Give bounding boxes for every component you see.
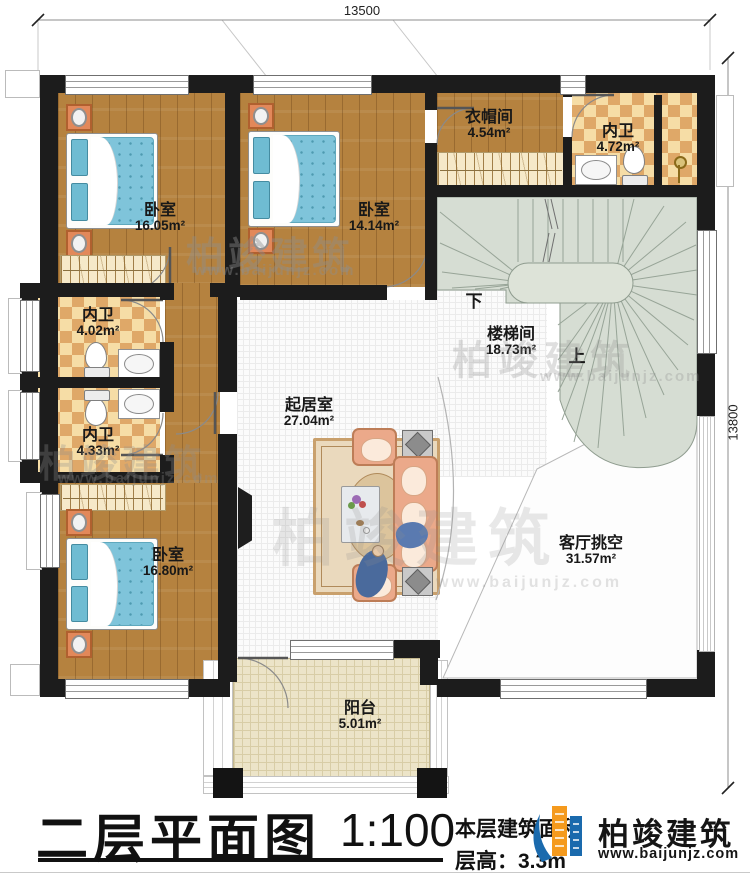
room-label-balcony: 阳台5.01m² bbox=[339, 701, 382, 731]
company-logo-url: www.baijunjz.com bbox=[598, 846, 739, 862]
wall bbox=[160, 342, 174, 412]
watermark-url: www.baijunjz.com bbox=[194, 262, 355, 279]
wall bbox=[240, 285, 387, 300]
exterior-trim bbox=[5, 70, 40, 98]
watermark-url: www.baijunjz.com bbox=[436, 574, 622, 592]
wall bbox=[563, 137, 572, 185]
watermark-url: www.baijunjz.com bbox=[540, 368, 701, 385]
dimension-top: 13500 bbox=[332, 3, 392, 18]
wall bbox=[425, 90, 437, 110]
room-label-living: 起居室27.04m² bbox=[284, 398, 334, 428]
window-band bbox=[699, 416, 715, 652]
window bbox=[560, 75, 586, 95]
wall bbox=[160, 283, 174, 300]
window bbox=[500, 679, 647, 699]
room-label-bedroom-3: 卧室16.80m² bbox=[143, 548, 193, 578]
window bbox=[20, 392, 40, 460]
exterior-trim bbox=[10, 664, 40, 696]
window bbox=[697, 230, 717, 354]
roof-lines bbox=[222, 20, 438, 77]
company-logo-icon bbox=[528, 800, 594, 870]
exterior-sill bbox=[716, 95, 734, 187]
plan-scale: 1:100 bbox=[340, 803, 455, 857]
window bbox=[65, 75, 189, 95]
wall bbox=[425, 185, 715, 197]
room-label-bedroom-2: 卧室14.14m² bbox=[349, 203, 399, 233]
room-label-void: 客厅挑空31.57m² bbox=[559, 536, 623, 566]
title-underline-2 bbox=[0, 872, 750, 873]
room-label-bedroom-1: 卧室16.05m² bbox=[135, 203, 185, 233]
floor-plan-canvas: 卧室16.05m² 卧室14.14m² 衣帽间4.54m² 内卫4.72m² 内… bbox=[0, 0, 750, 880]
wall bbox=[654, 95, 662, 185]
wall bbox=[420, 655, 438, 685]
wall bbox=[36, 377, 160, 388]
window bbox=[253, 75, 372, 95]
dimension-right: 13800 bbox=[726, 393, 741, 453]
wall bbox=[40, 283, 167, 297]
window bbox=[40, 494, 60, 568]
wall bbox=[425, 143, 437, 290]
stairs-down-label: 下 bbox=[466, 287, 483, 312]
watermark-url: www.baijunjz.com bbox=[58, 470, 219, 487]
title-underline bbox=[38, 858, 443, 862]
window bbox=[20, 300, 40, 372]
room-label-bath-top: 内卫4.72m² bbox=[597, 124, 640, 154]
room-label-cloakroom: 衣帽间4.54m² bbox=[465, 110, 513, 140]
room-label-bath-mid-1: 内卫4.02m² bbox=[77, 308, 120, 338]
window bbox=[290, 640, 394, 660]
watermark-brand: 柏竣建筑 bbox=[272, 488, 560, 578]
wall bbox=[218, 434, 237, 682]
wall bbox=[218, 295, 237, 392]
window bbox=[65, 679, 189, 699]
